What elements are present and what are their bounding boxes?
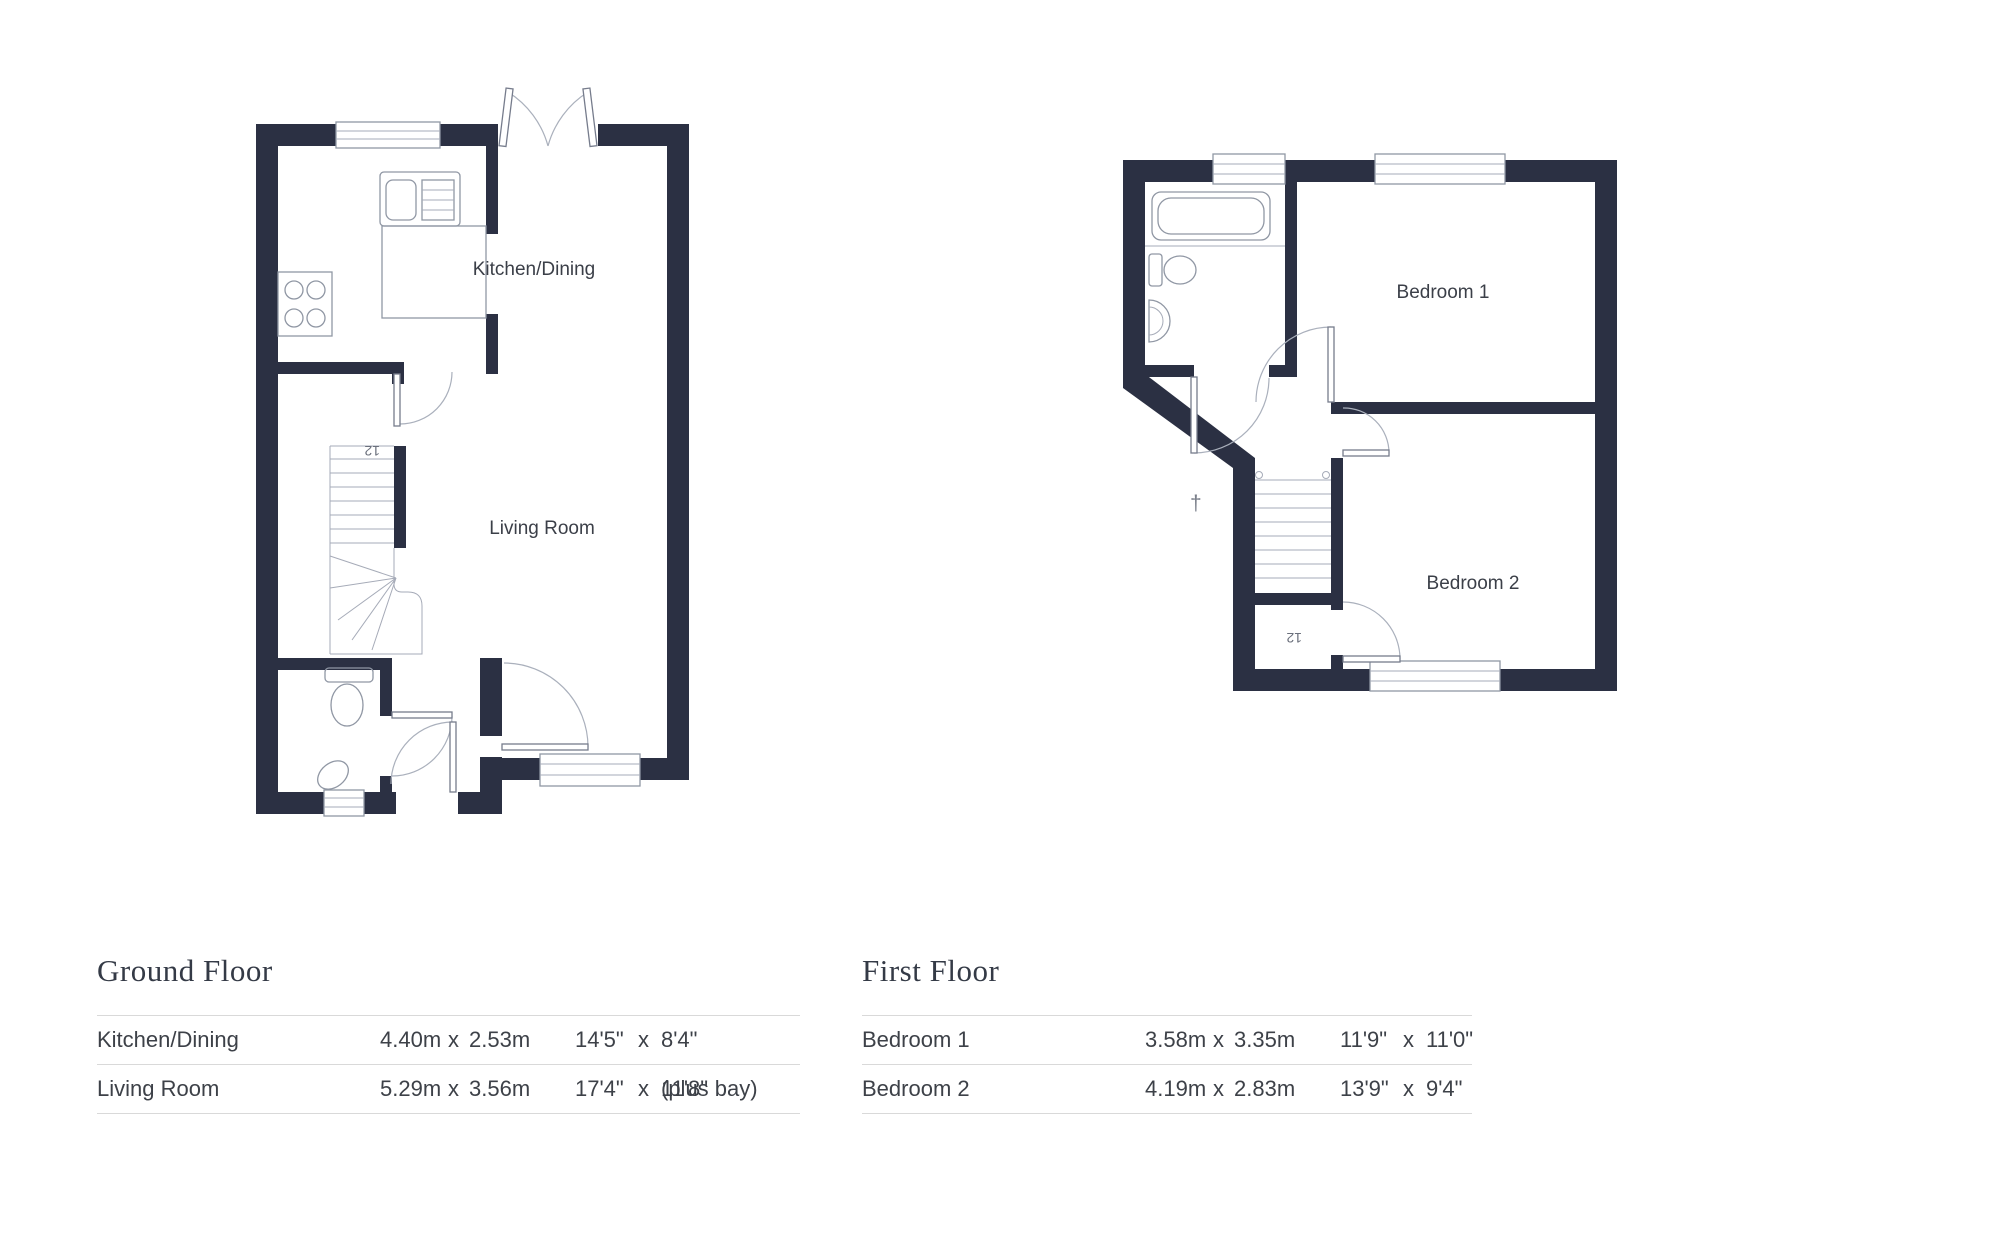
dagger-annotation: † <box>1190 492 1202 515</box>
table-row: Bedroom 2 4.19m x 2.83m 13'9" x 9'4" <box>862 1064 1472 1114</box>
living-room-label: Living Room <box>489 518 595 539</box>
bedroom1-window <box>1375 154 1505 184</box>
imperial-x: x <box>1403 1076 1414 1102</box>
metric-x: x <box>1213 1027 1224 1053</box>
metric-dim-1: 4.19m <box>1145 1076 1206 1102</box>
wc-toilet <box>325 668 373 726</box>
table-row: Kitchen/Dining 4.40m x 2.53m 14'5" x 8'4… <box>97 1015 800 1064</box>
metric-dim-1: 3.58m <box>1145 1027 1206 1053</box>
room-name: Kitchen/Dining <box>97 1027 239 1053</box>
ground-floor-plan: 12 Kitchen/Dining Living Room <box>246 76 701 821</box>
metric-x: x <box>1213 1076 1224 1102</box>
wc-door <box>392 712 452 776</box>
ground-stairs <box>330 446 422 654</box>
metric-x: x <box>448 1027 459 1053</box>
first-floor-table: First Floor Bedroom 1 3.58m x 3.35m 11'9… <box>862 953 1472 1114</box>
first-internal-walls <box>1145 182 1595 669</box>
first-floor-plan: 12 † Bedroom 1 Bedroom 2 <box>1112 150 1622 695</box>
imperial-dim-1: 14'5" <box>575 1027 624 1053</box>
first-stairs <box>1255 472 1331 579</box>
french-doors <box>499 88 597 146</box>
bedroom2-window <box>1370 661 1500 691</box>
room-name: Living Room <box>97 1076 219 1102</box>
metric-dim-2: 2.53m <box>469 1027 530 1053</box>
imperial-x: x <box>638 1027 649 1053</box>
table-row: Bedroom 1 3.58m x 3.35m 11'9" x 11'0" <box>862 1015 1472 1064</box>
room-name: Bedroom 2 <box>862 1076 970 1102</box>
bedroom1-label: Bedroom 1 <box>1397 282 1490 303</box>
toilet <box>1149 254 1196 286</box>
metric-x: x <box>448 1076 459 1102</box>
table-row: Living Room 5.29m x 3.56m 17'4" x 11'8" … <box>97 1064 800 1114</box>
metric-dim-2: 2.83m <box>1234 1076 1295 1102</box>
ground-stairs-count: 12 <box>364 443 380 459</box>
living-room-door <box>502 663 588 750</box>
kitchen-counter <box>382 226 486 318</box>
metric-dim-1: 5.29m <box>380 1076 441 1102</box>
imperial-x: x <box>1403 1027 1414 1053</box>
ground-floor-table: Ground Floor Kitchen/Dining 4.40m x 2.53… <box>97 953 800 1114</box>
bedroom2-door <box>1343 408 1389 456</box>
wc-window <box>324 790 364 816</box>
bay-window <box>540 754 640 786</box>
first-floor-heading: First Floor <box>862 953 1472 989</box>
kitchen-sink <box>380 172 460 226</box>
bathroom-window <box>1213 154 1285 184</box>
bedroom2-label: Bedroom 2 <box>1427 573 1520 594</box>
front-door <box>391 722 456 792</box>
room-name: Bedroom 1 <box>862 1027 970 1053</box>
imperial-dim-1: 11'9" <box>1340 1027 1387 1053</box>
imperial-dim-1: 17'4" <box>575 1076 624 1102</box>
cupboard-door <box>1343 602 1400 662</box>
imperial-dim-1: 13'9" <box>1340 1076 1389 1102</box>
metric-dim-2: 3.56m <box>469 1076 530 1102</box>
imperial-x: x <box>638 1076 649 1102</box>
ground-floor-heading: Ground Floor <box>97 953 800 989</box>
bathtub <box>1145 192 1285 246</box>
kitchen-window <box>336 122 440 148</box>
kitchen-dining-label: Kitchen/Dining <box>473 259 596 280</box>
wc-basin <box>312 755 354 795</box>
floorplan-page: 12 Kitchen/Dining Living Room <box>0 0 2000 1233</box>
kitchen-hob <box>278 272 332 336</box>
metric-dim-1: 4.40m <box>380 1027 441 1053</box>
ground-walls <box>256 124 689 814</box>
metric-dim-2: 3.35m <box>1234 1027 1295 1053</box>
basin <box>1149 300 1170 342</box>
first-stairs-count: 12 <box>1286 630 1302 646</box>
